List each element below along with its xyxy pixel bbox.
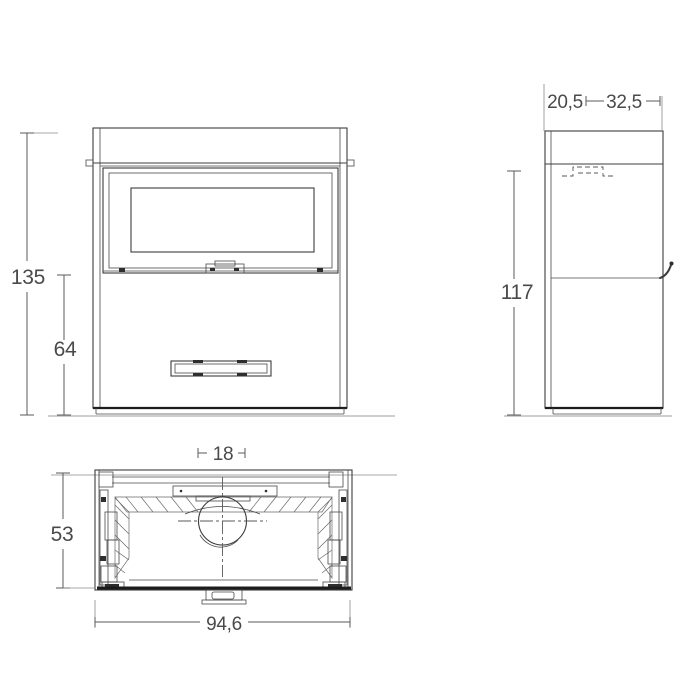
latch-mark-left xyxy=(210,268,215,271)
dimension-label-18: 18 xyxy=(213,444,234,465)
front-door-glass xyxy=(131,188,314,252)
dimension-lower-height-64: 64 xyxy=(54,275,77,415)
front-door-right-hinge xyxy=(317,268,323,272)
plan-back-right-tab xyxy=(329,472,343,487)
flue-circle-offset-arc xyxy=(200,535,238,547)
front-top-band-left-lip xyxy=(86,160,93,166)
side-body-outline xyxy=(545,131,663,408)
latch-mark-right xyxy=(234,268,239,271)
latch-knob xyxy=(215,261,235,266)
dimension-total-height-135: 135 xyxy=(11,133,58,415)
back-wall-outline xyxy=(115,497,332,512)
stove-dimensional-drawing: 135 64 20,5 32,5 xyxy=(0,0,700,700)
side-door-handle xyxy=(660,262,674,279)
plan-screw-left xyxy=(180,490,183,493)
dimension-label-64: 64 xyxy=(54,338,77,361)
drawer-mark-2 xyxy=(237,360,247,363)
drawer-slot-inner xyxy=(175,364,267,373)
dimension-label-94-6: 94,6 xyxy=(206,614,242,635)
plan-front-handle-tab xyxy=(202,590,246,604)
front-view xyxy=(48,128,395,416)
plan-left-bracket-assembly xyxy=(100,490,124,589)
dimension-label-135: 135 xyxy=(11,266,45,289)
dimension-flue-diameter-18: 18 xyxy=(198,444,245,465)
drawer-mark-1 xyxy=(193,360,203,363)
plan-flue-outlet xyxy=(178,477,267,577)
dimension-plan-depth-53: 53 xyxy=(51,473,95,588)
front-ash-drawer-handle xyxy=(171,360,271,376)
plan-screw-right xyxy=(265,490,268,493)
drawer-mark-3 xyxy=(193,373,203,376)
dimension-side-height-117: 117 xyxy=(501,171,534,415)
dimension-label-20-5: 20,5 xyxy=(547,92,583,113)
plan-back-wall-hatch xyxy=(115,497,332,512)
handle-tip xyxy=(670,262,674,266)
front-door-frame-inner xyxy=(109,173,332,268)
handle-lever xyxy=(660,265,671,278)
drawer-slot-outer xyxy=(171,361,271,376)
dimension-label-32-5: 32,5 xyxy=(606,92,642,113)
dimension-plan-width-94-6: 94,6 xyxy=(95,600,350,635)
plan-outline xyxy=(95,470,352,590)
dimension-label-53: 53 xyxy=(51,523,74,546)
plan-back-left-tab xyxy=(99,472,113,487)
dimension-label-117: 117 xyxy=(501,281,534,304)
front-top-band-right-lip xyxy=(347,160,354,166)
plan-flue-collar-plate xyxy=(173,486,277,496)
drawer-mark-4 xyxy=(237,373,247,376)
dimension-depth-top: 20,5 32,5 xyxy=(547,92,660,113)
front-door-frame-outer xyxy=(103,168,338,273)
plan-view xyxy=(51,470,397,604)
technical-drawing-page: 135 64 20,5 32,5 xyxy=(0,0,700,700)
side-damper-detail xyxy=(562,167,613,176)
front-door-left-hinge xyxy=(119,268,125,272)
side-view xyxy=(504,84,674,416)
